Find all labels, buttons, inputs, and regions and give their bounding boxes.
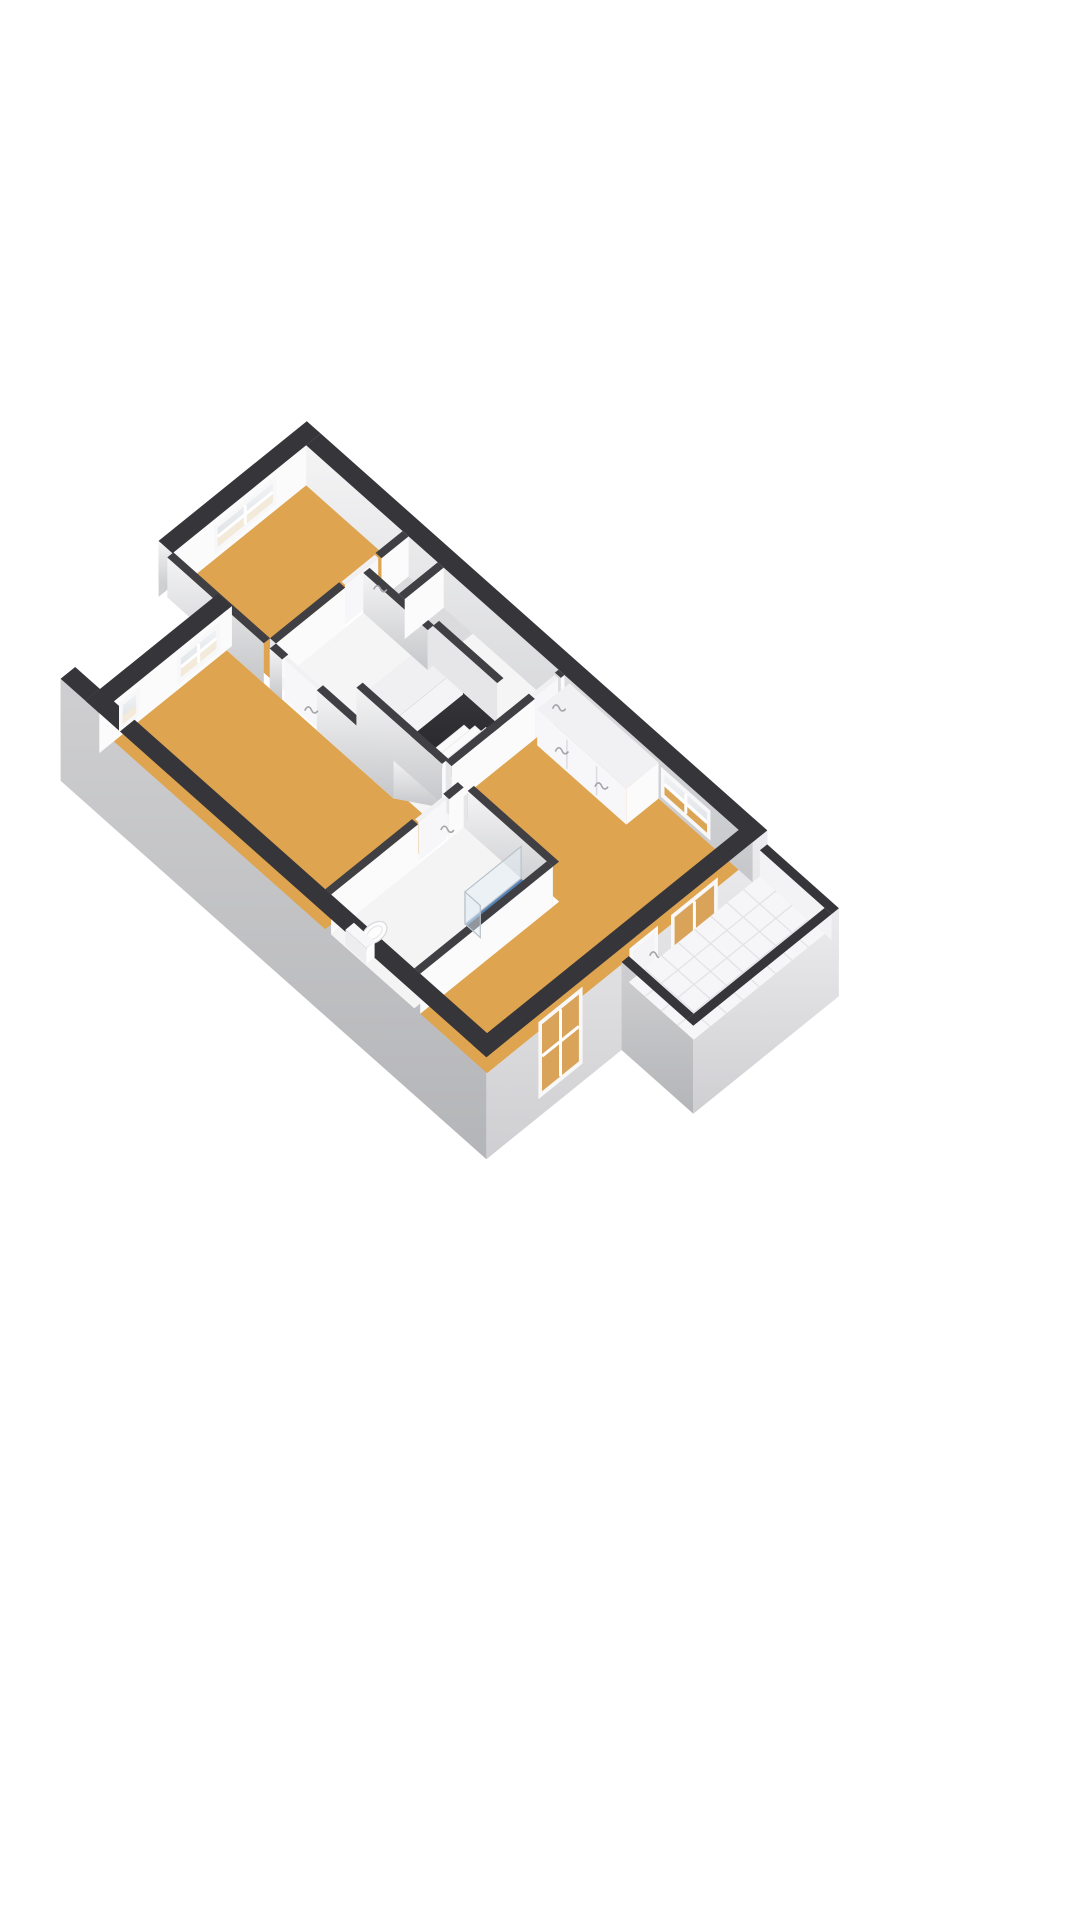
- floor-plan-canvas: [0, 0, 1080, 1920]
- floor-plan-3d: [0, 0, 1080, 1920]
